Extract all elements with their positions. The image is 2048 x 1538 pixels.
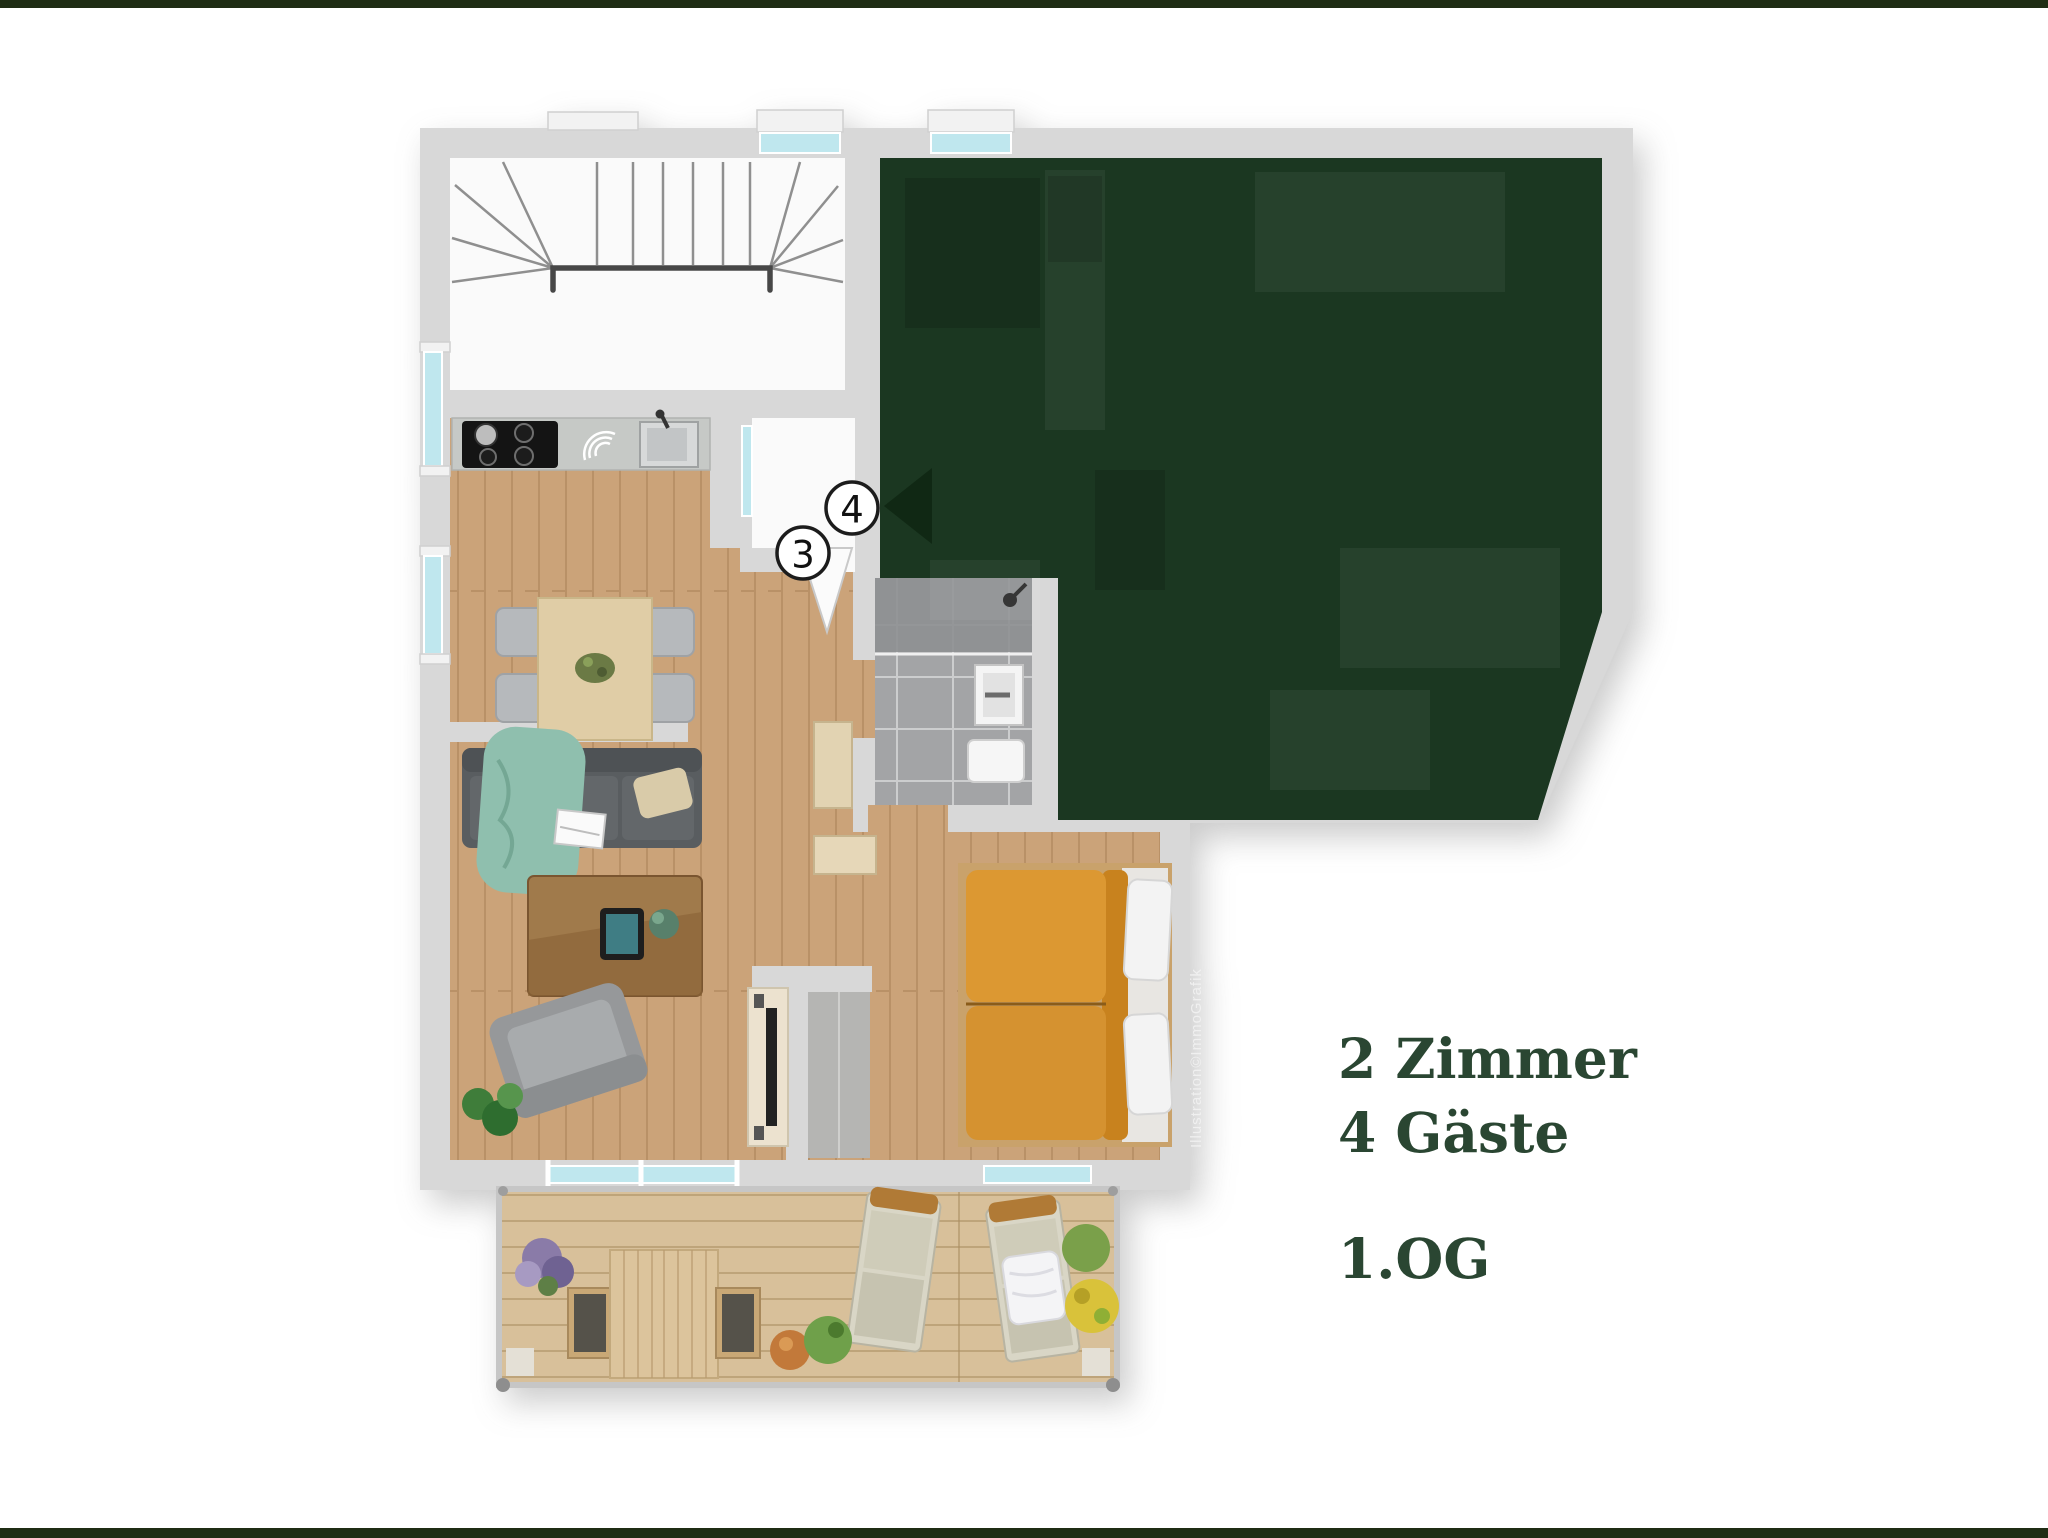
tv (766, 1008, 777, 1126)
deck-pad (506, 1348, 534, 1376)
roof-notch (548, 112, 638, 130)
wall-bedroom-west (786, 992, 808, 1160)
deck-screw (498, 1186, 508, 1196)
pillow (1123, 879, 1172, 981)
pillow (1123, 1013, 1172, 1115)
marker-3-label: 3 (791, 534, 815, 577)
marker-3: 3 (777, 527, 829, 579)
hall-cabinet (814, 722, 852, 808)
duvet (966, 870, 1106, 1002)
burner (475, 424, 497, 446)
terrace (496, 1186, 1120, 1392)
tv-lowboard (748, 988, 788, 1146)
table-plant (649, 909, 679, 939)
top-window (931, 133, 1011, 153)
window-tab (928, 110, 1014, 132)
floorplan-page: 3 4 Illustration©ImmoGrafik 2 Zimmer 4 G… (0, 0, 2048, 1538)
deck-screw (1106, 1378, 1120, 1392)
living-window-west (424, 556, 442, 654)
sidelight-window (742, 426, 752, 516)
sink-basin (647, 428, 687, 461)
coffee-table (528, 876, 702, 996)
guests-count: 4 Gäste (1338, 1096, 1637, 1170)
book (554, 810, 605, 849)
deck-screw (496, 1378, 510, 1392)
illustrator-watermark: Illustration©ImmoGrafik (1188, 968, 1205, 1148)
stairwell-window (424, 352, 442, 466)
terrace-bench (716, 1288, 760, 1358)
towel (1001, 1250, 1066, 1325)
burner (515, 424, 533, 442)
table-bowl (575, 653, 615, 683)
double-bed (958, 863, 1173, 1147)
top-window (760, 133, 840, 153)
listing-info-panel: 2 Zimmer 4 Gäste 1.OG (1338, 1022, 1637, 1296)
stairwell (450, 158, 845, 390)
window-tab (757, 110, 843, 132)
kitchen (452, 410, 710, 471)
burner (480, 449, 496, 465)
rooms-count: 2 Zimmer (1338, 1022, 1637, 1096)
burner (515, 447, 533, 465)
floorplan-illustration: 3 4 Illustration©ImmoGrafik (0, 0, 2048, 1538)
floor-label: 1.OG (1338, 1222, 1637, 1296)
deck-screw (1108, 1186, 1118, 1196)
toilet (968, 740, 1024, 782)
marker-4-label: 4 (840, 489, 864, 532)
bedroom-window (984, 1166, 1091, 1183)
marker-4: 4 (826, 482, 878, 534)
deck-pad (1082, 1348, 1110, 1376)
bedroom-dresser (814, 836, 876, 874)
terrace-bench (568, 1288, 612, 1358)
duvet (966, 1006, 1106, 1140)
